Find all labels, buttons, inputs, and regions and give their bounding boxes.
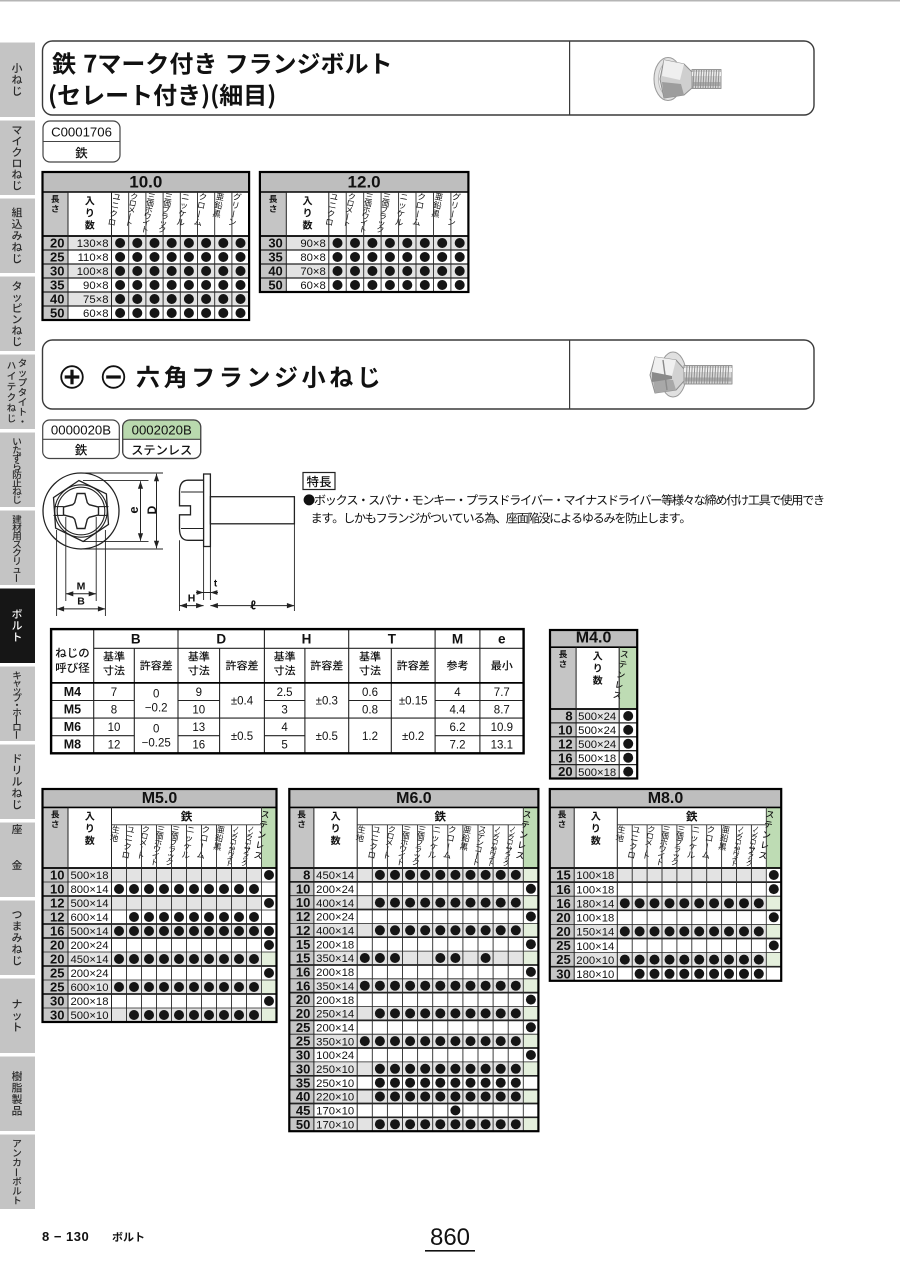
svg-text:M5.0: M5.0 bbox=[142, 790, 178, 807]
svg-text:60×8: 60×8 bbox=[300, 280, 325, 292]
svg-text:600×14: 600×14 bbox=[70, 912, 108, 924]
svg-text:10: 10 bbox=[296, 895, 310, 910]
svg-text:25: 25 bbox=[556, 952, 570, 967]
svg-text:25: 25 bbox=[50, 966, 64, 981]
svg-text:C0001706: C0001706 bbox=[51, 125, 112, 140]
svg-text:16: 16 bbox=[556, 896, 570, 911]
svg-text:13: 13 bbox=[192, 722, 205, 734]
svg-text:7.7: 7.7 bbox=[494, 687, 510, 699]
svg-text:7.2: 7.2 bbox=[450, 740, 466, 752]
svg-text:100×18: 100×18 bbox=[576, 884, 614, 896]
svg-text:35: 35 bbox=[296, 1075, 310, 1090]
svg-text:100×18: 100×18 bbox=[576, 870, 614, 882]
svg-text:30: 30 bbox=[50, 1008, 64, 1023]
svg-text:500×10: 500×10 bbox=[70, 1010, 108, 1022]
svg-text:0: 0 bbox=[153, 688, 159, 700]
svg-text:e: e bbox=[498, 631, 506, 646]
svg-text:0.6: 0.6 bbox=[362, 687, 378, 699]
svg-text:9: 9 bbox=[196, 687, 202, 699]
svg-text:20: 20 bbox=[296, 1006, 310, 1021]
svg-text:200×24: 200×24 bbox=[70, 940, 108, 952]
svg-text:±0.15: ±0.15 bbox=[399, 696, 428, 708]
svg-text:200×10: 200×10 bbox=[576, 955, 614, 967]
svg-text:170×10: 170×10 bbox=[316, 1106, 354, 1118]
svg-text:220×10: 220×10 bbox=[316, 1092, 354, 1104]
svg-text:20: 20 bbox=[50, 952, 64, 967]
svg-text:D: D bbox=[145, 505, 159, 514]
svg-text:40: 40 bbox=[296, 1089, 310, 1104]
svg-text:12: 12 bbox=[558, 736, 572, 751]
svg-text:100×18: 100×18 bbox=[576, 913, 614, 925]
svg-text:30: 30 bbox=[296, 1061, 310, 1076]
svg-text:25: 25 bbox=[556, 938, 570, 953]
svg-text:M: M bbox=[77, 580, 86, 592]
svg-text:80×8: 80×8 bbox=[300, 252, 325, 264]
svg-text:B: B bbox=[131, 631, 141, 646]
svg-text:8: 8 bbox=[111, 705, 117, 717]
svg-text:2.5: 2.5 bbox=[277, 687, 293, 699]
svg-text:30: 30 bbox=[50, 994, 64, 1009]
svg-text:50: 50 bbox=[296, 1117, 310, 1132]
svg-text:100×24: 100×24 bbox=[316, 1050, 354, 1062]
svg-text:±0.5: ±0.5 bbox=[316, 731, 338, 743]
svg-text:±0.3: ±0.3 bbox=[316, 696, 338, 708]
svg-text:16: 16 bbox=[296, 978, 310, 993]
svg-text:D: D bbox=[216, 631, 226, 646]
svg-text:90×8: 90×8 bbox=[83, 280, 108, 292]
svg-text:M4: M4 bbox=[64, 685, 81, 699]
svg-text:10: 10 bbox=[108, 722, 121, 734]
svg-text:25: 25 bbox=[296, 1020, 310, 1035]
svg-text:350×14: 350×14 bbox=[316, 953, 354, 965]
svg-text:30: 30 bbox=[50, 264, 64, 279]
svg-text:500×24: 500×24 bbox=[578, 711, 616, 723]
svg-text:200×18: 200×18 bbox=[70, 996, 108, 1008]
svg-text:400×14: 400×14 bbox=[316, 898, 354, 910]
svg-text:50: 50 bbox=[50, 306, 64, 321]
svg-text:0: 0 bbox=[153, 724, 159, 736]
svg-text:e: e bbox=[126, 506, 141, 513]
svg-text:12: 12 bbox=[108, 740, 121, 752]
svg-text:450×14: 450×14 bbox=[316, 870, 354, 882]
svg-text:30: 30 bbox=[556, 966, 570, 981]
svg-text:16: 16 bbox=[556, 882, 570, 897]
svg-text:200×18: 200×18 bbox=[316, 939, 354, 951]
svg-text:500×24: 500×24 bbox=[578, 725, 616, 737]
svg-text:4: 4 bbox=[454, 687, 461, 699]
svg-text:200×24: 200×24 bbox=[70, 968, 108, 980]
svg-text:H: H bbox=[302, 631, 312, 646]
svg-text:8 − 130: 8 − 130 bbox=[42, 1229, 89, 1244]
svg-text:10: 10 bbox=[50, 868, 64, 883]
svg-text:M6: M6 bbox=[64, 720, 81, 734]
svg-text:200×18: 200×18 bbox=[316, 995, 354, 1007]
svg-text:150×14: 150×14 bbox=[576, 927, 614, 939]
svg-text:90×8: 90×8 bbox=[300, 238, 325, 250]
svg-text:250×10: 250×10 bbox=[316, 1078, 354, 1090]
svg-text:12: 12 bbox=[50, 896, 64, 911]
svg-text:16: 16 bbox=[558, 750, 572, 765]
svg-text:25: 25 bbox=[50, 980, 64, 995]
svg-text:4: 4 bbox=[281, 722, 288, 734]
svg-text:15: 15 bbox=[296, 937, 310, 952]
svg-text:75×8: 75×8 bbox=[83, 294, 108, 306]
svg-text:45: 45 bbox=[296, 1103, 310, 1118]
svg-text:35: 35 bbox=[50, 278, 64, 293]
svg-text:25: 25 bbox=[296, 1034, 310, 1049]
svg-text:180×10: 180×10 bbox=[576, 969, 614, 981]
svg-text:5: 5 bbox=[281, 740, 287, 752]
svg-text:500×18: 500×18 bbox=[70, 870, 108, 882]
svg-text:12: 12 bbox=[296, 923, 310, 938]
svg-text:±0.5: ±0.5 bbox=[231, 731, 253, 743]
svg-text:13.1: 13.1 bbox=[491, 740, 513, 752]
svg-text:15: 15 bbox=[296, 951, 310, 966]
svg-text:M5: M5 bbox=[64, 703, 81, 717]
svg-text:12: 12 bbox=[50, 910, 64, 925]
svg-text:15: 15 bbox=[556, 868, 570, 883]
svg-text:H: H bbox=[188, 592, 196, 604]
svg-text:200×24: 200×24 bbox=[316, 912, 354, 924]
svg-text:350×10: 350×10 bbox=[316, 1036, 354, 1048]
svg-text:30: 30 bbox=[296, 1048, 310, 1063]
svg-text:16: 16 bbox=[296, 965, 310, 980]
svg-text:30: 30 bbox=[268, 236, 282, 251]
svg-text:60×8: 60×8 bbox=[83, 308, 108, 320]
svg-text:M: M bbox=[452, 631, 463, 646]
svg-text:20: 20 bbox=[296, 992, 310, 1007]
svg-text:10: 10 bbox=[192, 705, 205, 717]
svg-text:200×24: 200×24 bbox=[316, 884, 354, 896]
svg-text:20: 20 bbox=[556, 924, 570, 939]
svg-text:8.7: 8.7 bbox=[494, 705, 510, 717]
svg-text:500×18: 500×18 bbox=[578, 753, 616, 765]
svg-text:500×14: 500×14 bbox=[70, 898, 108, 910]
svg-text:10.0: 10.0 bbox=[129, 173, 162, 192]
svg-text:200×14: 200×14 bbox=[316, 1023, 354, 1035]
svg-text:10.9: 10.9 bbox=[491, 722, 513, 734]
svg-text:±0.2: ±0.2 bbox=[402, 731, 424, 743]
svg-text:12.0: 12.0 bbox=[348, 173, 381, 192]
svg-text:110×8: 110×8 bbox=[78, 252, 109, 264]
svg-text:7: 7 bbox=[111, 687, 117, 699]
svg-text:250×14: 250×14 bbox=[316, 1009, 354, 1021]
svg-text:−0.2: −0.2 bbox=[145, 702, 168, 714]
svg-text:40: 40 bbox=[268, 264, 282, 279]
svg-text:12: 12 bbox=[296, 909, 310, 924]
svg-text:50: 50 bbox=[268, 278, 282, 293]
svg-text:250×10: 250×10 bbox=[316, 1064, 354, 1076]
svg-text:0000020B: 0000020B bbox=[51, 423, 111, 438]
svg-text:3: 3 bbox=[281, 705, 287, 717]
svg-text:4.4: 4.4 bbox=[450, 705, 467, 717]
svg-text:20: 20 bbox=[558, 764, 572, 779]
svg-text:350×14: 350×14 bbox=[316, 981, 354, 993]
svg-text:M4.0: M4.0 bbox=[576, 630, 612, 647]
svg-text:600×10: 600×10 bbox=[70, 982, 108, 994]
svg-text:10: 10 bbox=[50, 882, 64, 897]
svg-text:500×14: 500×14 bbox=[70, 926, 108, 938]
svg-text:−0.25: −0.25 bbox=[142, 738, 171, 750]
svg-text:8: 8 bbox=[565, 709, 572, 724]
svg-text:35: 35 bbox=[268, 250, 282, 265]
svg-text:20: 20 bbox=[50, 938, 64, 953]
svg-text:6.2: 6.2 bbox=[450, 722, 466, 734]
svg-text:M6.0: M6.0 bbox=[396, 790, 432, 807]
svg-text:0002020B: 0002020B bbox=[132, 423, 192, 438]
svg-text:860: 860 bbox=[430, 1224, 470, 1251]
svg-text:16: 16 bbox=[50, 924, 64, 939]
svg-text:8: 8 bbox=[303, 868, 310, 883]
svg-text:M8.0: M8.0 bbox=[648, 790, 684, 807]
svg-text:180×14: 180×14 bbox=[576, 899, 614, 911]
svg-text:20: 20 bbox=[50, 236, 64, 251]
svg-text:10: 10 bbox=[558, 723, 572, 738]
svg-text:200×18: 200×18 bbox=[316, 967, 354, 979]
svg-text:100×8: 100×8 bbox=[77, 266, 109, 278]
svg-text:10: 10 bbox=[296, 881, 310, 896]
svg-text:500×18: 500×18 bbox=[578, 767, 616, 779]
svg-text:M8: M8 bbox=[64, 738, 81, 752]
svg-text:100×14: 100×14 bbox=[576, 941, 614, 953]
svg-text:0.8: 0.8 bbox=[362, 705, 378, 717]
svg-text:B: B bbox=[77, 596, 85, 608]
svg-text:±0.4: ±0.4 bbox=[231, 696, 254, 708]
svg-text:25: 25 bbox=[50, 250, 64, 265]
svg-text:400×14: 400×14 bbox=[316, 926, 354, 938]
svg-text:450×14: 450×14 bbox=[70, 954, 108, 966]
svg-text:170×10: 170×10 bbox=[316, 1119, 354, 1131]
svg-text:20: 20 bbox=[556, 910, 570, 925]
svg-text:130×8: 130×8 bbox=[77, 238, 109, 250]
svg-text:800×14: 800×14 bbox=[70, 884, 108, 896]
svg-text:T: T bbox=[388, 631, 397, 646]
svg-text:16: 16 bbox=[192, 740, 205, 752]
svg-text:40: 40 bbox=[50, 292, 64, 307]
svg-text:70×8: 70×8 bbox=[300, 266, 325, 278]
svg-text:500×24: 500×24 bbox=[578, 739, 616, 751]
svg-text:1.2: 1.2 bbox=[362, 731, 378, 743]
